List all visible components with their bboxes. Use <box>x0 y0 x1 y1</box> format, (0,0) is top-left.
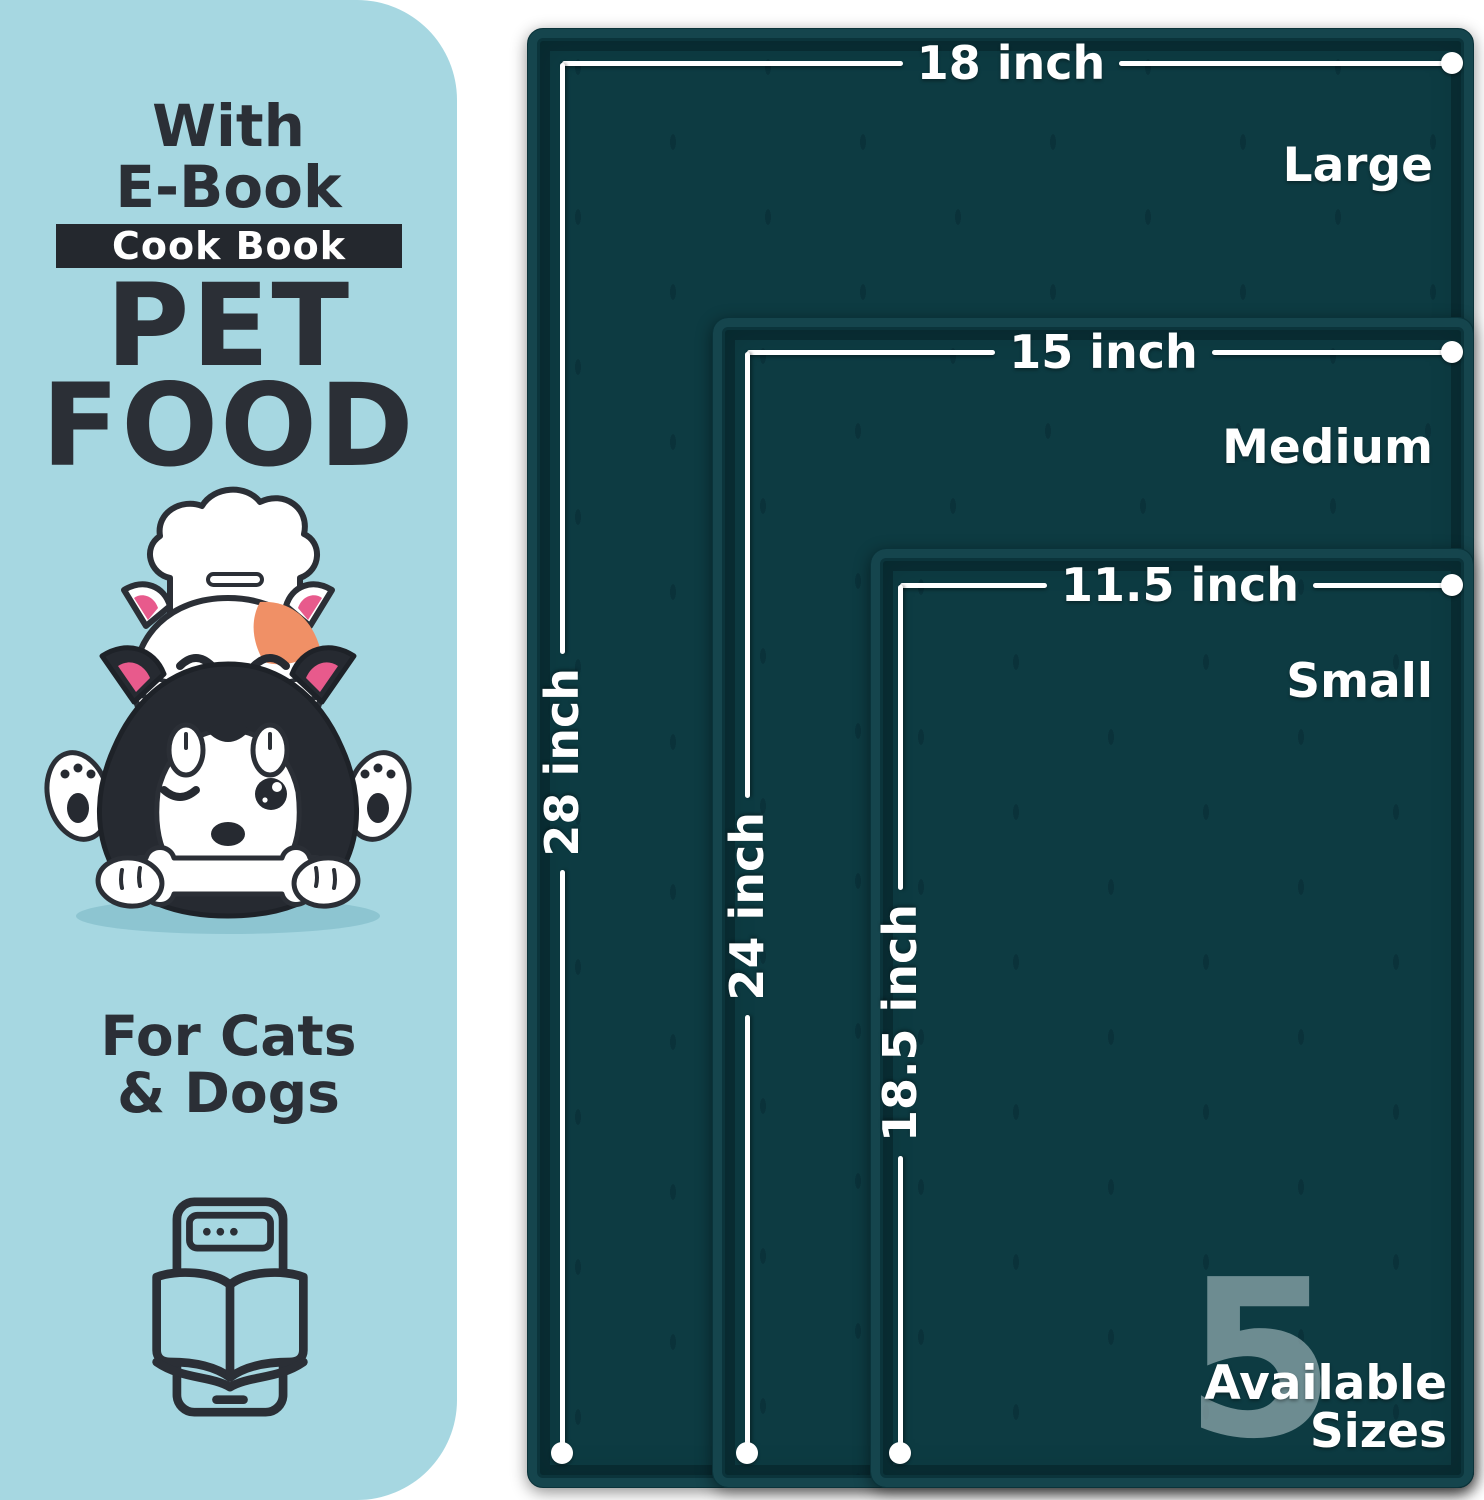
size-name-small: Small <box>1286 654 1433 709</box>
available-line-1: Available <box>1204 1360 1447 1408</box>
dimension-line-endpoint <box>745 1015 750 1461</box>
dimension-line <box>560 63 565 654</box>
dimension-line-endpoint <box>898 1156 903 1461</box>
audience-text: For Cats & Dogs <box>0 1008 457 1122</box>
size-name-medium: Medium <box>1222 420 1433 475</box>
left-info-panel: With E-Book Cook Book PET FOOD <box>0 0 457 1500</box>
width-dimension-large: 18 inch <box>562 38 1460 88</box>
width-dimension-small: 11.5 inch <box>900 560 1460 610</box>
width-label-small: 11.5 inch <box>1061 558 1299 612</box>
intro-line-1: With <box>0 96 457 157</box>
audience-line-2: & Dogs <box>0 1065 457 1122</box>
title-line-2: FOOD <box>0 376 457 476</box>
dimension-line <box>898 585 903 890</box>
product-title: PET FOOD <box>0 276 457 477</box>
height-dimension-large: 28 inch <box>537 63 587 1461</box>
dimension-line <box>745 352 750 798</box>
height-dimension-small: 18.5 inch <box>875 585 925 1461</box>
ebook-intro-text: With E-Book <box>0 96 457 219</box>
ebook-tablet-icon <box>142 1196 318 1418</box>
available-line-2: Sizes <box>1204 1408 1447 1456</box>
dimension-line-endpoint <box>1119 61 1460 66</box>
size-name-large: Large <box>1283 138 1433 193</box>
width-dimension-medium: 15 inch <box>747 327 1460 377</box>
dimension-line-endpoint <box>1313 583 1460 588</box>
width-label-large: 18 inch <box>917 36 1106 90</box>
product-infographic: With E-Book Cook Book PET FOOD <box>0 0 1484 1500</box>
available-sizes-label: Available Sizes <box>1204 1360 1447 1456</box>
dimension-line-endpoint <box>1212 350 1460 355</box>
height-label-large: 28 inch <box>535 668 589 857</box>
height-label-medium: 24 inch <box>720 812 774 1001</box>
height-dimension-medium: 24 inch <box>722 352 772 1461</box>
cat-dog-chef-illustration <box>38 478 418 938</box>
width-label-medium: 15 inch <box>1009 325 1198 379</box>
height-label-small: 18.5 inch <box>873 904 927 1142</box>
dimension-line-endpoint <box>560 870 565 1461</box>
audience-line-1: For Cats <box>0 1008 457 1065</box>
intro-line-2: E-Book <box>0 157 457 218</box>
dimension-line <box>562 61 903 66</box>
dimension-line <box>747 350 995 355</box>
